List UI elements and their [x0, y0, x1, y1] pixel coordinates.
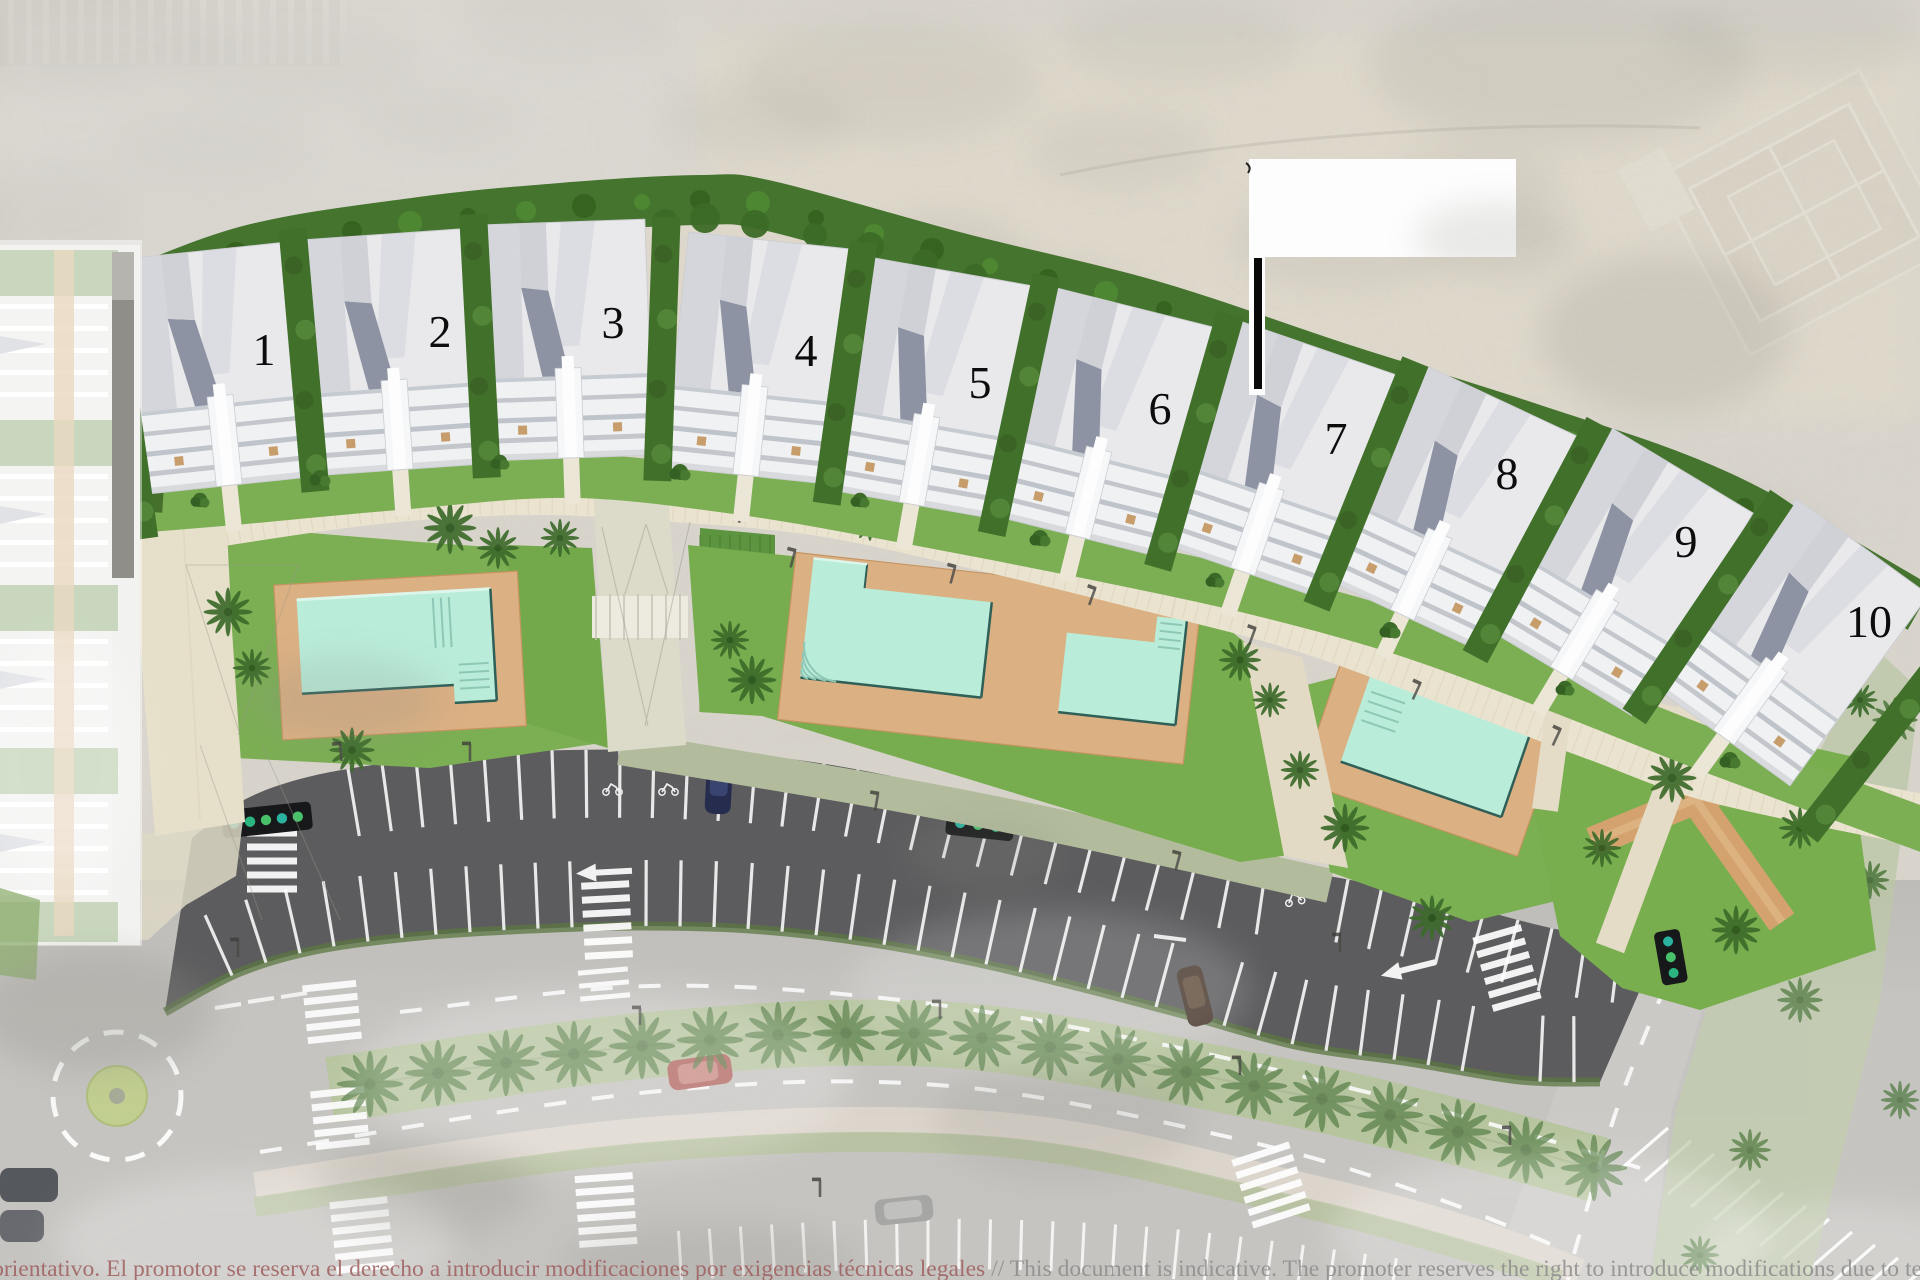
svg-text:2: 2: [429, 306, 452, 357]
svg-text:4: 4: [795, 325, 818, 376]
svg-text:9: 9: [1675, 516, 1698, 567]
svg-text:ento es orientativo. El promot: ento es orientativo. El promotor se rese…: [0, 1256, 1920, 1280]
svg-text:7: 7: [1325, 413, 1348, 464]
svg-text:6: 6: [1149, 383, 1172, 434]
svg-text:5: 5: [969, 357, 992, 408]
svg-text:1: 1: [253, 324, 276, 375]
svg-text:8: 8: [1496, 448, 1519, 499]
svg-text:10: 10: [1846, 596, 1892, 647]
svg-text:3: 3: [602, 297, 625, 348]
